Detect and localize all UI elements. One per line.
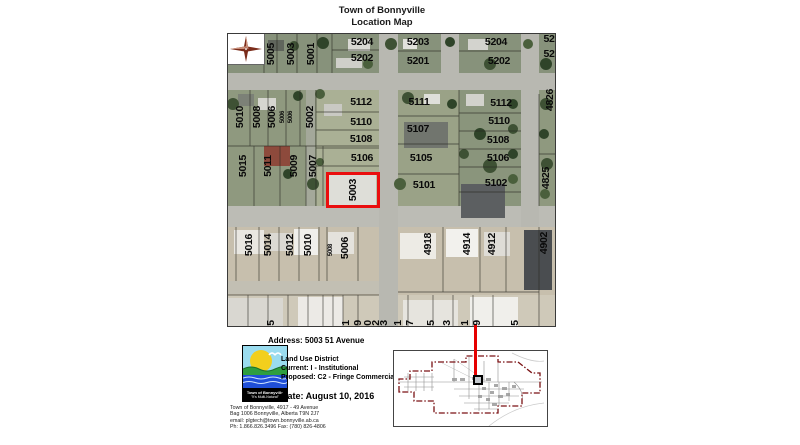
address-line: Address: 5003 51 Avenue: [268, 336, 364, 345]
contact-block: Town of Bonnyville, 4917 - 49 Avenue Bag…: [230, 405, 326, 431]
lot-label-4825: 4825: [541, 167, 552, 189]
lot-label-5: 5: [266, 320, 277, 326]
inset-map-graphic: [394, 351, 547, 426]
location-map-document: Town of Bonnyville Location Map: [0, 0, 800, 445]
contact-line: Bag 1006 Bonnyville, Alberta T9N 2J7: [230, 411, 326, 417]
lot-label-5110: 5110: [488, 116, 510, 127]
lot-label-5106: 5106: [351, 153, 373, 164]
lot-label-5006: 5006: [288, 111, 294, 123]
lot-label-5202: 5202: [488, 56, 510, 67]
lot-label-5006: 5006: [267, 106, 278, 128]
lot-label-5201: 5201: [407, 56, 429, 67]
lot-label-5006: 5006: [280, 111, 286, 123]
lot-label-1: 1: [393, 320, 404, 326]
lot-label-5010: 5010: [235, 106, 246, 128]
lot-label-5106: 5106: [487, 153, 509, 164]
lot-label-4826: 4826: [545, 89, 556, 111]
lot-label-5006: 5006: [340, 237, 351, 259]
lot-label-4902: 4902: [539, 232, 550, 254]
lot-label-7: 7: [405, 320, 416, 326]
land-use-current: Current: I - Institutional: [281, 364, 396, 373]
lot-label-5108: 5108: [350, 134, 372, 145]
lot-label-1: 1: [341, 320, 352, 326]
lot-label-5011: 5011: [263, 155, 274, 177]
lot-label-5010: 5010: [303, 234, 314, 256]
lot-label-3: 3: [442, 320, 453, 326]
lot-label-52: 52: [543, 49, 554, 60]
document-title: Town of Bonnyville Location Map: [227, 5, 537, 28]
lot-label-5003: 5003: [348, 179, 359, 201]
lot-label-5110: 5110: [350, 117, 372, 128]
contact-line: Ph: 1.866.826.3496 Fax: (780) 826-4806: [230, 424, 326, 430]
lot-label-3: 3: [379, 320, 390, 326]
lot-label-5008: 5008: [328, 244, 334, 256]
date-line: Date: August 10, 2016: [281, 391, 374, 401]
title-line-2: Location Map: [227, 17, 537, 29]
inset-overview-map: [393, 350, 548, 427]
north-arrow: [228, 34, 265, 65]
lot-label-4912: 4912: [487, 233, 498, 255]
lot-label-5204: 5204: [351, 37, 373, 48]
lot-label-5015: 5015: [238, 155, 249, 177]
land-use-block: Land Use District Current: I - Instituti…: [281, 355, 396, 382]
compass-rose-icon: [228, 34, 264, 64]
lot-label-5105: 5105: [410, 153, 432, 164]
lot-label-4918: 4918: [423, 233, 434, 255]
lot-label-1: 1: [460, 320, 471, 326]
lot-label-5001: 5001: [306, 43, 317, 65]
lot-label-5111: 5111: [409, 97, 430, 108]
lot-label-5: 5: [510, 320, 521, 326]
land-use-proposed: Proposed: C2 - Fringe Commercial: [281, 373, 396, 382]
lot-label-5204: 5204: [485, 37, 507, 48]
lot-label-5016: 5016: [244, 234, 255, 256]
lot-label-4914: 4914: [462, 233, 473, 255]
lot-label-5112: 5112: [490, 98, 512, 109]
lot-label-5101: 5101: [413, 180, 435, 191]
lot-label-5005: 5005: [266, 43, 277, 65]
subject-property-marker: [474, 376, 482, 384]
lot-label-5014: 5014: [263, 234, 274, 256]
lot-label-5009: 5009: [289, 155, 300, 177]
lot-label-5203: 5203: [407, 37, 429, 48]
lot-label-5112: 5112: [350, 97, 372, 108]
lot-label-5107: 5107: [407, 124, 429, 135]
lot-label-5108: 5108: [487, 135, 509, 146]
lot-label-5003: 5003: [286, 43, 297, 65]
aerial-map: 5204520252035201520452025252511251105108…: [227, 33, 556, 327]
lot-label-5002: 5002: [305, 106, 316, 128]
lot-label-5102: 5102: [485, 178, 507, 189]
lot-label-5008: 5008: [252, 106, 263, 128]
land-use-heading: Land Use District: [281, 355, 396, 364]
title-line-1: Town of Bonnyville: [227, 5, 537, 17]
lot-label-5: 5: [426, 320, 437, 326]
lot-label-5202: 5202: [351, 53, 373, 64]
lot-label-52: 52: [543, 34, 554, 45]
subject-leader-line: [474, 325, 477, 375]
lot-label-5012: 5012: [285, 234, 296, 256]
lot-label-5007: 5007: [308, 155, 319, 177]
